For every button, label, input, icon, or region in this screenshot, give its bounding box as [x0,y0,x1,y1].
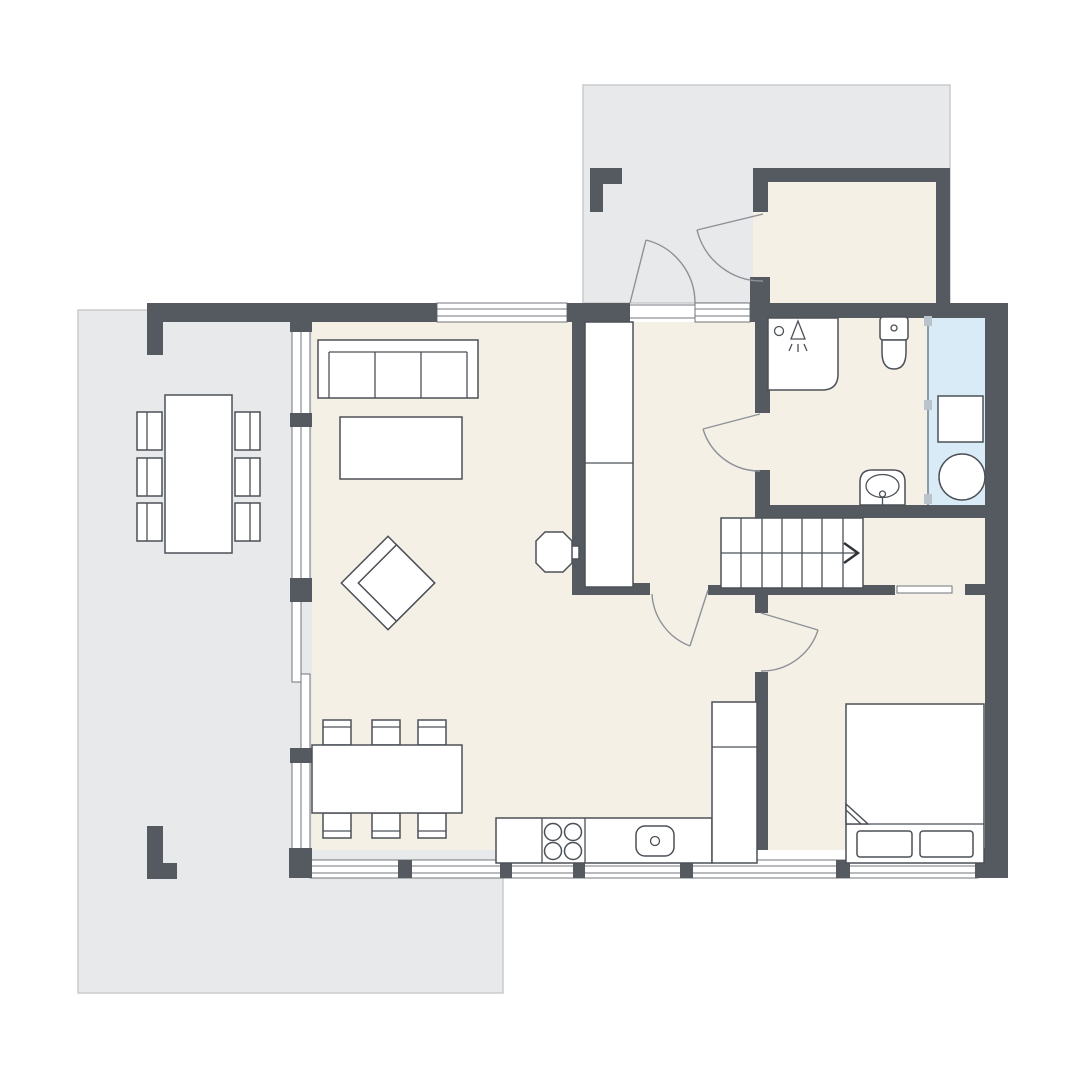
sliding-door-panel [292,600,301,682]
round-appliance [939,454,985,500]
glass-knob [924,494,932,504]
washing-machine [938,396,983,442]
wall-pier [290,322,312,332]
window [437,303,567,322]
wall-segment [753,182,768,212]
pillow [857,831,912,857]
sink-basin [636,826,674,856]
wall-segment [147,303,437,322]
chair [418,813,446,838]
wall-segment [985,303,1008,878]
wall-segment [753,168,950,182]
floor-plan-page [0,0,1080,1080]
kitchen-counter [496,818,712,863]
tall-unit-outline [712,702,757,863]
double-bed [846,704,984,863]
pillow [920,831,973,857]
wall-pier [398,860,412,878]
toilet-bowl [882,340,906,369]
wall-pier [290,748,312,763]
glass-knob [924,400,932,410]
chair [372,813,400,838]
chair [235,458,260,496]
chair [137,503,162,541]
cabinet-outline [585,322,633,587]
burner [545,824,562,841]
wall-segment [567,303,630,322]
shower [768,318,838,390]
chair [137,458,162,496]
sofa-outline [318,340,478,398]
wall-segment [147,303,163,355]
coffee-table [340,417,462,479]
burner [565,824,582,841]
chair [372,720,400,745]
wall-segment [572,322,585,583]
outdoor-dining-set [137,395,260,553]
burner [565,843,582,860]
stove-body [536,532,572,572]
chair [137,412,162,450]
kitchen-sink [636,826,674,856]
terrace-corner-mark [590,168,603,212]
chair [418,720,446,745]
wall-segment [753,280,768,303]
terrace-corner-mark [147,863,177,879]
chair [235,412,260,450]
wall-pier [290,413,312,427]
wall-segment [755,505,985,518]
floor-plan-canvas [0,0,1080,1080]
dining-set [312,720,462,838]
toilet-tank [880,317,908,340]
wall-segment [755,585,768,613]
washbasin [860,470,905,505]
chair [323,720,351,745]
wall-segment [936,168,950,303]
sliding-door-panel [301,674,310,750]
wall-pier [290,578,312,602]
tall-kitchen-unit [712,702,757,863]
wall-corner [289,848,312,878]
glass-knob [924,316,932,326]
shower-tray [768,318,838,390]
sofa [318,340,478,398]
wall-segment [750,303,1008,318]
toilet [880,317,908,369]
storage-room-floor [768,182,936,303]
chair [235,503,260,541]
window [695,303,750,322]
interior-glass-strip [897,586,952,593]
storage-door-threshold [753,212,768,280]
chair [323,813,351,838]
tall-cabinet [585,322,633,587]
burner [545,843,562,860]
outdoor-table [165,395,232,553]
staircase [721,518,863,588]
dining-table [312,745,462,813]
wall-pier [965,584,985,595]
